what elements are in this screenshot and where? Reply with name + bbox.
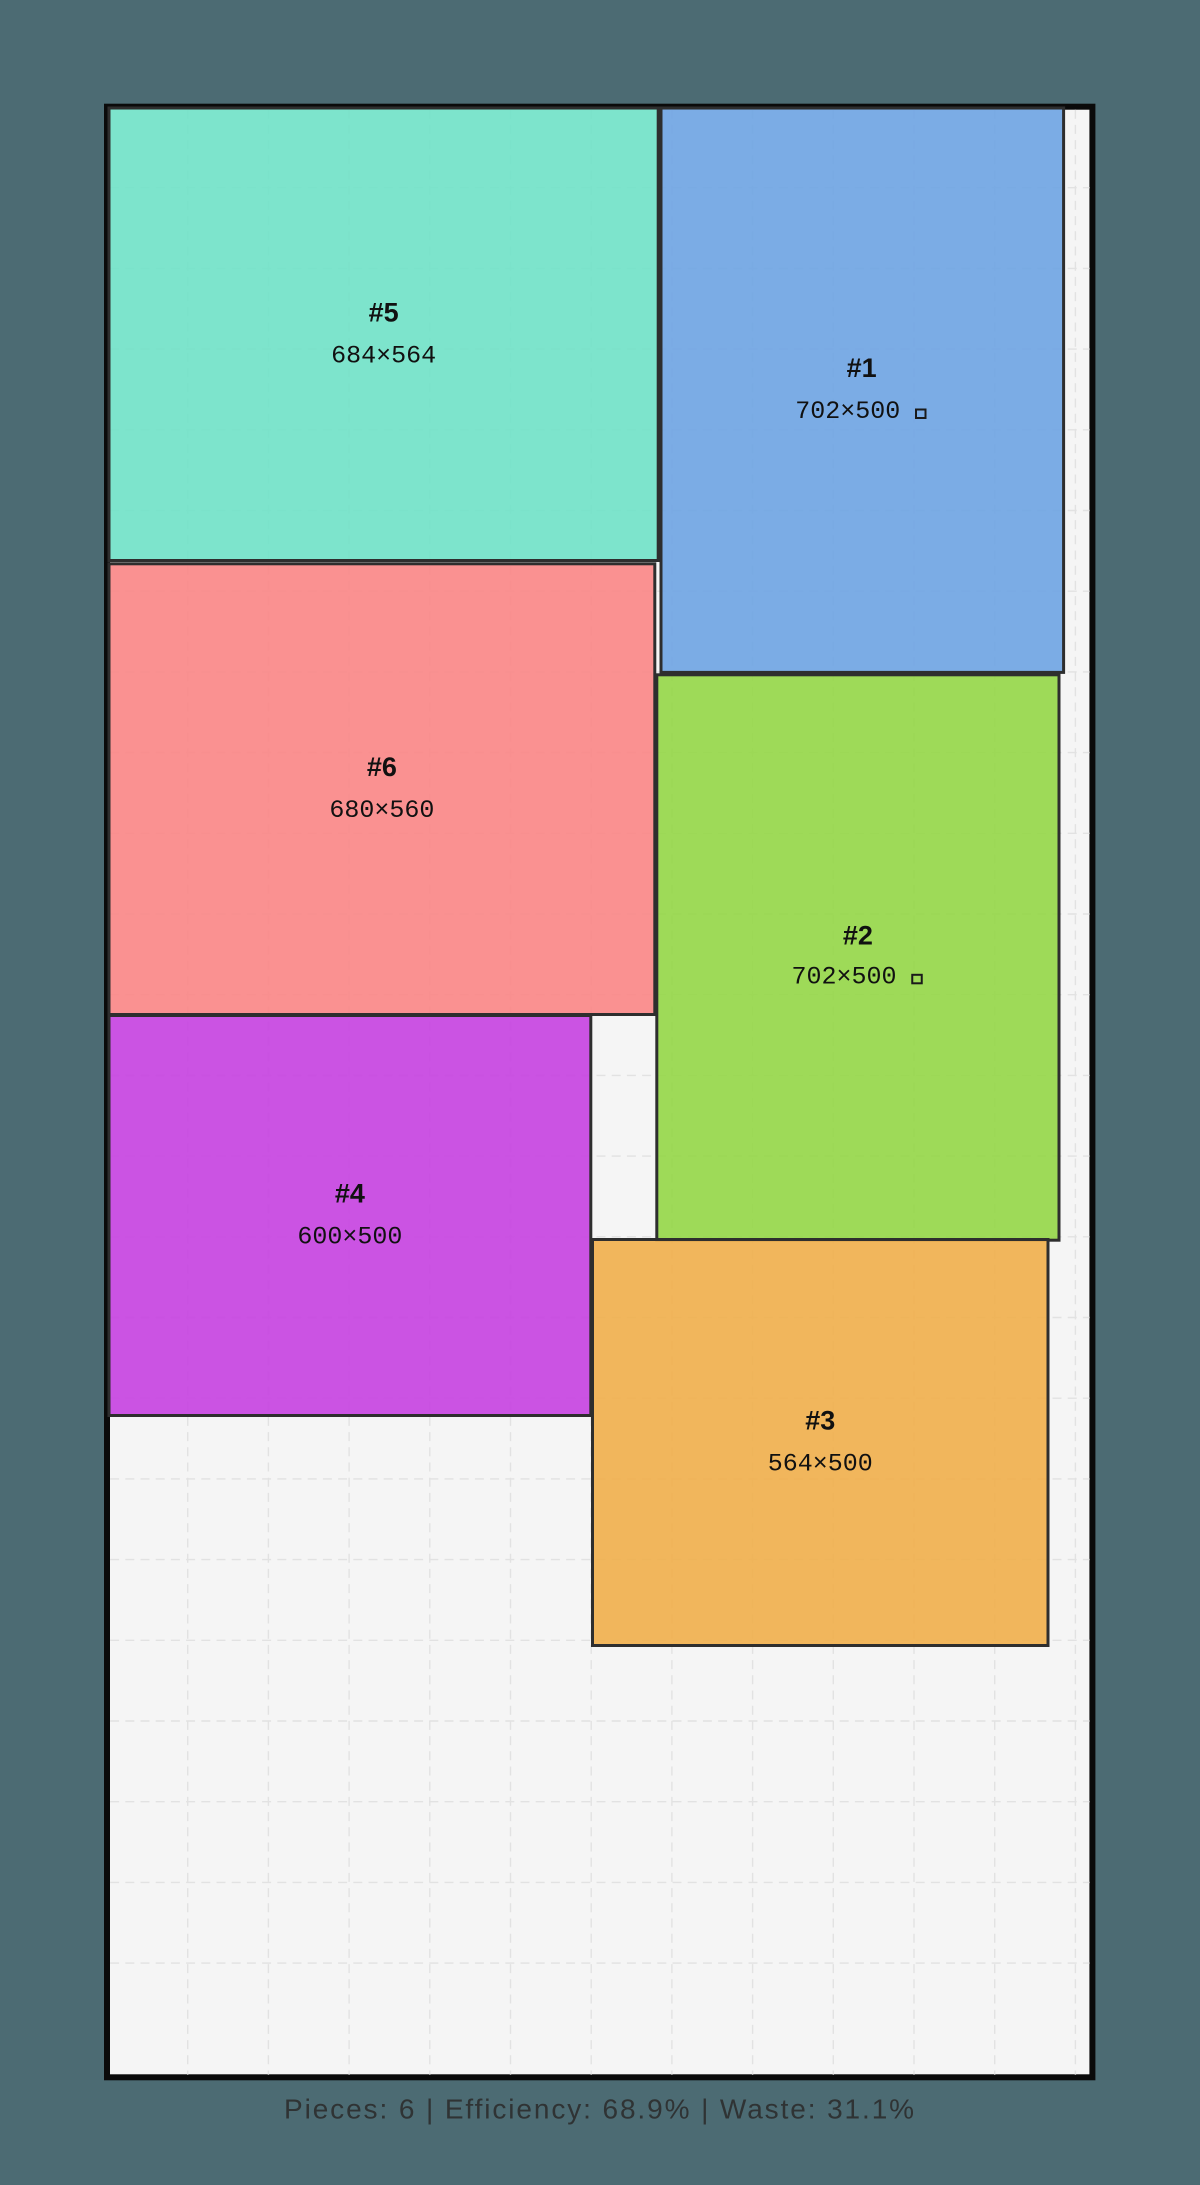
- svg-text:#2: #2: [843, 921, 873, 951]
- svg-text:Pieces: 6 | Efficiency: 68.9%: Pieces: 6 | Efficiency: 68.9% | Waste: 3…: [284, 2093, 916, 2124]
- svg-text:#4: #4: [335, 1179, 365, 1209]
- svg-text:680×560: 680×560: [329, 796, 434, 825]
- svg-text:#6: #6: [367, 752, 397, 782]
- svg-text:702×500: 702×500: [791, 963, 896, 992]
- svg-text:702×500: 702×500: [795, 397, 900, 426]
- svg-text:#3: #3: [805, 1406, 835, 1436]
- svg-text:#5: #5: [369, 297, 399, 327]
- svg-text:600×500: 600×500: [297, 1223, 402, 1252]
- svg-text:564×500: 564×500: [768, 1450, 873, 1479]
- svg-text:684×564: 684×564: [331, 341, 436, 370]
- svg-text:#1: #1: [847, 353, 877, 383]
